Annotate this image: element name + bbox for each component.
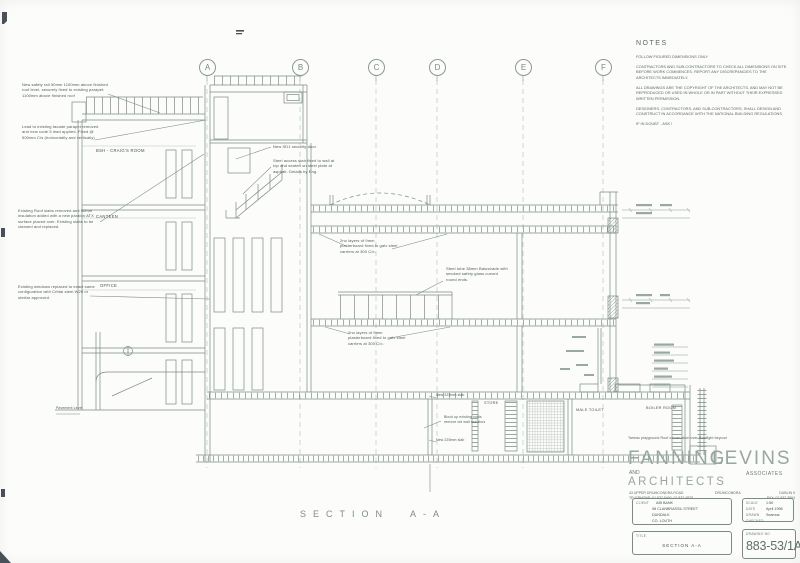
room-label-office: OFFICE	[100, 283, 117, 288]
firm-associates: ASSOCIATES	[746, 471, 783, 477]
room-label-bsh: BSH - CRAIG'S ROOM	[96, 148, 145, 153]
drawing-title: SECTION A-A	[636, 543, 728, 548]
annotation-plasterboard-lower: 2no layers of 9mm plasterboard fixed to …	[348, 330, 406, 346]
annotation-access-stair: Steel access stair fixed to wall at top …	[273, 158, 335, 174]
checked-label: CHECKED	[746, 519, 762, 524]
annotation-security-door: New SD1 security door	[273, 144, 335, 149]
annotation-plasterboard-upper: 2no layers of 9mm plasterboard fixed to …	[340, 238, 398, 254]
grid-bubble-e: E	[515, 59, 532, 76]
section-title: SECTION A-A	[300, 509, 446, 519]
annotation-safety-rail: New safety rail 50mm 1100mm above finish…	[22, 82, 110, 98]
title-block: FANNING LEVINS AND ASSOCIATES ARCHITECTS…	[624, 444, 796, 562]
notes-para: CONTRACTORS AND SUB-CONTRACTORS TO CHECK…	[636, 64, 792, 80]
room-label-store: STORE	[484, 401, 499, 405]
drawn-value: Seamus	[766, 513, 780, 519]
room-label-boiler-room: BOILER ROOM	[646, 406, 676, 410]
notes-para: FOLLOW FIGURED DIMENSIONS ONLY	[636, 54, 792, 59]
drawing-sheet: A B C D E F NOTES FOLLOW FIGURED DIMENSI…	[0, 0, 800, 563]
annotation-playground: Tarmac playground Roof construction over…	[628, 436, 758, 441]
scale-box: SCALE 1:50 DATE April 1998 DRAWN Seamus …	[742, 498, 794, 522]
annotation-lead-parapet: Lead to existing facade parapet removed …	[22, 124, 102, 140]
firm-architects: ARCHITECTS	[628, 476, 726, 488]
annotation-pavement-level: Pavement Level	[56, 406, 86, 411]
drawing-number: 883-53/1A	[746, 539, 792, 553]
annotation-balustrade: Steel tube 38mm Balustrade with smoked s…	[446, 266, 508, 282]
room-label-canteen: CANTEEN	[96, 214, 118, 219]
grid-bubble-c: C	[368, 59, 385, 76]
area-line: DRUMCONDRA	[715, 491, 759, 496]
title-box: TITLE SECTION A-A	[632, 531, 732, 555]
annotation-block-up: Block up existing voids remove old wall …	[444, 415, 490, 424]
notes-para: ALL DRAWINGS ARE THE COPYRIGHT OF THE AR…	[636, 85, 792, 101]
title-label: TITLE	[636, 534, 728, 538]
notes-para: DESIGNERS, CONTRACTORS, AND SUB-CONTRACT…	[636, 106, 792, 117]
grid-bubble-d: D	[429, 59, 446, 76]
client-label: CLIENT	[636, 501, 652, 507]
firm-name-levins: LEVINS	[712, 448, 792, 470]
annotation-slab-lower: New 225mm slab	[436, 438, 478, 443]
client-addr3: CO. LOUTH	[652, 519, 728, 525]
notes-para: IF IN DOUBT - ASK !	[636, 121, 792, 126]
notes-block: NOTES FOLLOW FIGURED DIMENSIONS ONLY CON…	[636, 40, 792, 131]
annotation-slab-upper: New 225mm slab	[436, 393, 478, 398]
annotation-windows-replaced: Existing windows replaced to exact same …	[18, 284, 96, 300]
annotation-roof-slabs: Existing Roof slabs removed and 50mm ins…	[18, 208, 100, 230]
drawing-no-label: DRAWING NO	[746, 532, 792, 536]
notes-heading: NOTES	[636, 40, 792, 47]
room-label-male-toilet: MALE TOILET	[576, 408, 604, 412]
grid-bubble-a: A	[199, 59, 216, 76]
grid-bubble-b: B	[292, 59, 309, 76]
drawing-number-box: DRAWING NO 883-53/1A	[742, 529, 796, 559]
client-box: CLIENT AIB BANK 98 CLANBRASSIL STREET DU…	[632, 498, 732, 525]
grid-bubble-f: F	[595, 59, 612, 76]
